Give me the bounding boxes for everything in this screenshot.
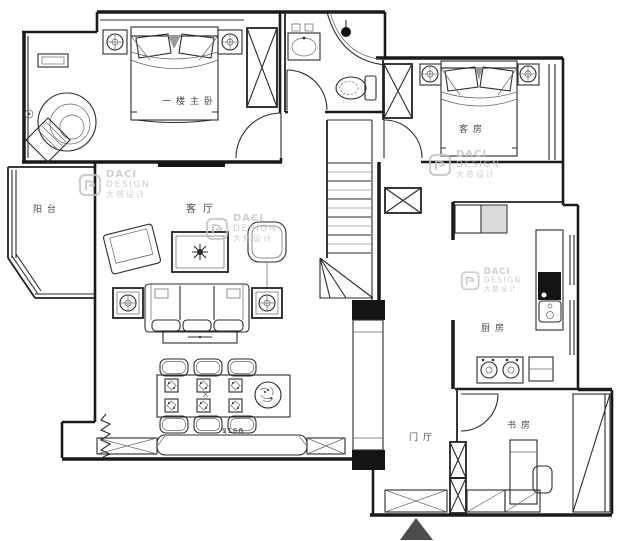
entry-column [450,442,466,513]
nightstand-right [218,30,242,54]
fridge [481,205,507,233]
master-bedroom-area [25,27,281,167]
lounge-chair [25,93,96,162]
floor-plan-drawing: 一楼主卧 阳台 客厅 客房 厨房 门厅 书房 3160 [0,0,634,541]
room-label-hallway: 门厅 [409,431,437,443]
sink [288,33,320,60]
room-label-balcony: 阳台 [33,203,61,215]
flue-column [385,188,421,213]
tv-panel [158,162,225,167]
room-label-study: 书房 [507,419,535,431]
bathroom-area [287,12,385,110]
study-cabinets [467,490,540,512]
balcony-area [8,167,95,298]
entrance-arrow-icon [400,518,433,540]
side-table-left [113,288,143,318]
room-label-kitchen: 厨房 [481,322,509,334]
living-room-area [97,222,345,457]
stove-counter [538,272,561,300]
room-label-living-room: 客厅 [186,202,220,215]
sofa-console [163,331,237,343]
wardrobe [247,28,277,107]
room-label-guest-room: 客房 [459,123,487,135]
guest-wardrobe [384,64,412,118]
coffee-table [172,232,228,272]
dimension-label: 3160 [222,427,244,435]
armchair-right [248,222,286,288]
table-plant [192,244,208,260]
bed [131,27,218,123]
bedroom-door [236,113,281,158]
hallway-cabinet [353,320,383,450]
dining-set [157,359,290,433]
study-area [461,394,610,512]
kitchen-box [529,357,553,381]
shoe-cabinet [385,490,447,512]
guest-room-area [384,61,539,158]
desk-chair [533,466,552,493]
side-table-right [252,288,282,318]
bench [38,54,68,67]
kitchen-sink [539,301,561,322]
gas-stove [477,357,523,383]
guest-nightstand-right [518,64,539,85]
entry-area [385,442,466,540]
study-door [461,394,498,431]
dining-plant [255,382,281,408]
kitchen-area [455,205,563,383]
toilet [336,76,376,100]
sofa [145,284,249,332]
staircase [320,120,373,300]
bathroom-door [287,70,327,110]
nightstand-left [103,30,127,54]
armchair-tilted [103,224,161,275]
sideboard-cabinet [97,435,345,455]
guest-door [384,120,422,158]
floor-plan: 一楼主卧 阳台 客厅 客房 厨房 门厅 书房 3160 DACI DESIGN … [0,0,634,541]
guest-nightstand-left [420,64,441,85]
counter [455,205,481,233]
guest-bed [441,61,517,156]
room-label-master-bedroom: 一楼主卧 [162,95,218,107]
